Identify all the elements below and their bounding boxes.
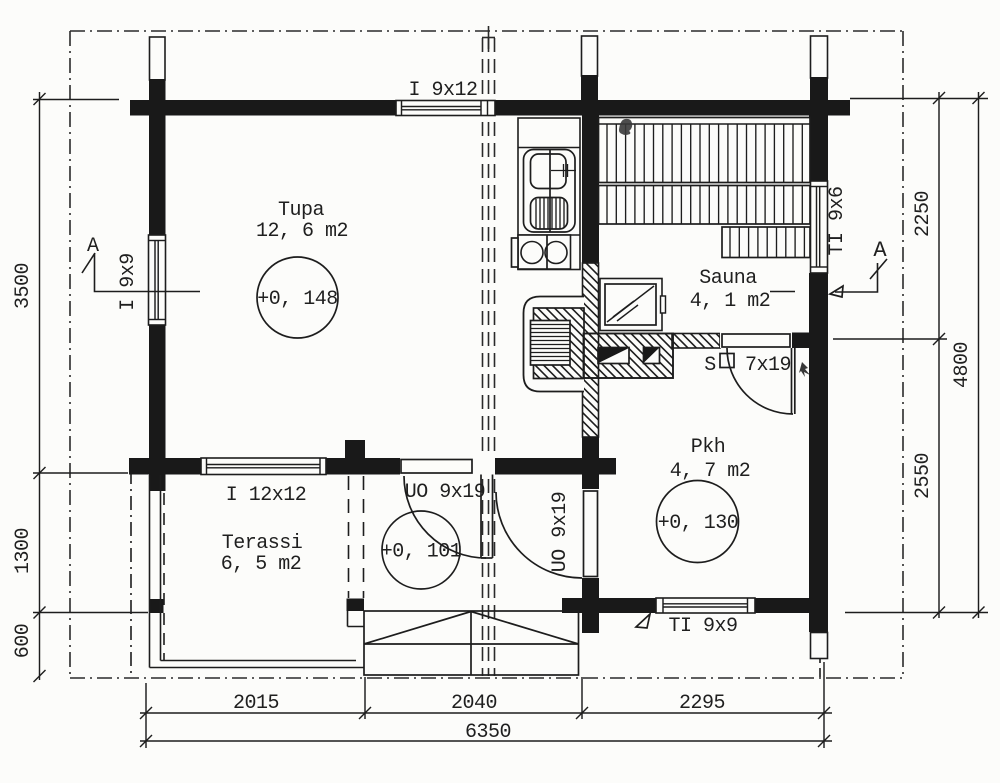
svg-text:UO 9x19: UO 9x19 — [405, 481, 486, 504]
svg-text:UO 9x19: UO 9x19 — [549, 492, 572, 573]
svg-text:S: S — [704, 354, 716, 377]
svg-text:3500: 3500 — [12, 263, 35, 309]
svg-text:Tupa: Tupa — [278, 199, 325, 222]
svg-text:6350: 6350 — [465, 721, 511, 744]
svg-text:A: A — [87, 235, 99, 258]
svg-text:2015: 2015 — [233, 692, 279, 715]
svg-text:+0, 101: +0, 101 — [381, 541, 462, 564]
svg-text:Pkh: Pkh — [691, 436, 726, 459]
svg-text:I 9x12: I 9x12 — [408, 79, 477, 102]
svg-text:600: 600 — [12, 624, 35, 659]
svg-text:2295: 2295 — [679, 692, 725, 715]
svg-text:4, 1 m2: 4, 1 m2 — [690, 290, 771, 313]
svg-text:1300: 1300 — [12, 528, 35, 574]
svg-text:I 12x12: I 12x12 — [226, 484, 307, 507]
svg-text:I 9x9: I 9x9 — [117, 253, 140, 311]
svg-text:TI 9x9: TI 9x9 — [668, 615, 737, 638]
svg-text:4800: 4800 — [951, 342, 974, 388]
svg-text:Terassi: Terassi — [222, 532, 303, 555]
svg-text:4, 7 m2: 4, 7 m2 — [670, 460, 751, 483]
svg-text:2250: 2250 — [912, 191, 935, 237]
svg-text:2550: 2550 — [912, 453, 935, 499]
svg-text:Sauna: Sauna — [699, 267, 757, 290]
svg-text:7x19: 7x19 — [745, 354, 791, 377]
svg-text:A: A — [873, 238, 887, 263]
svg-text:6, 5 m2: 6, 5 m2 — [221, 553, 302, 576]
svg-text:12, 6 m2: 12, 6 m2 — [256, 220, 348, 243]
svg-text:+0, 130: +0, 130 — [658, 512, 739, 535]
svg-text:2040: 2040 — [451, 692, 497, 715]
svg-text:+0, 148: +0, 148 — [257, 288, 338, 311]
svg-text:TI 9x6: TI 9x6 — [826, 186, 849, 255]
